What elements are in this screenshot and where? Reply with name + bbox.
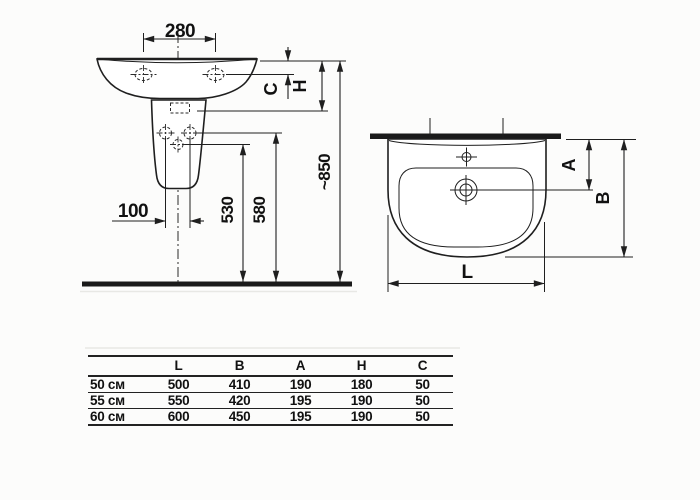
- basin-side-outline: [97, 59, 257, 99]
- dim-850-label: ~850: [315, 154, 334, 190]
- table-cell: 195: [270, 394, 331, 408]
- dim-C-label: C: [261, 83, 281, 96]
- dim-B: B: [593, 140, 624, 258]
- spec-table: L B A H C 50 см 500 410 190 180 50 55 см…: [88, 355, 453, 426]
- table-cell: 50: [392, 378, 453, 392]
- dim-A-label: A: [559, 159, 579, 172]
- table-header-cell-C: C: [392, 359, 453, 373]
- table-cell: 195: [270, 410, 331, 424]
- side-view: 280 C H ~850 580: [80, 21, 357, 292]
- washbasin-technical-drawing: 280 C H ~850 580: [0, 0, 700, 500]
- dim-580: 580: [250, 133, 276, 282]
- table-cell: 50: [392, 394, 453, 408]
- table-row-55cm: 55 см 550 420 195 190 50: [88, 393, 453, 409]
- dim-B-label: B: [593, 192, 613, 205]
- table-cell: 550: [148, 394, 209, 408]
- dim-100-label: 100: [118, 201, 148, 222]
- dim-L-label: L: [461, 262, 473, 283]
- dim-280: 280: [144, 21, 216, 52]
- floor-line: [82, 282, 352, 287]
- dim-H: H: [290, 61, 322, 111]
- dim-530: 530: [218, 145, 243, 282]
- table-cell: 190: [331, 394, 392, 408]
- dim-580-label: 580: [250, 197, 269, 224]
- table-row-label: 50 см: [88, 378, 148, 392]
- table-header-row: L B A H C: [88, 357, 453, 377]
- table-row-60cm: 60 см 600 450 195 190 50: [88, 409, 453, 424]
- table-cell: 420: [209, 394, 270, 408]
- dim-C: C: [261, 47, 288, 99]
- top-view: A B L: [370, 118, 636, 292]
- table-header-cell-H: H: [331, 359, 392, 373]
- dim-530-label: 530: [218, 197, 237, 224]
- table-cell: 180: [331, 378, 392, 392]
- table-cell: 410: [209, 378, 270, 392]
- dim-280-label: 280: [165, 21, 195, 42]
- wall-line: [370, 134, 561, 140]
- table-header-cell-B: B: [209, 359, 270, 373]
- table-cell: 500: [148, 378, 209, 392]
- table-header-cell-L: L: [148, 359, 209, 373]
- table-header-cell-A: A: [270, 359, 331, 373]
- table-row-50cm: 50 см 500 410 190 180 50: [88, 377, 453, 393]
- table-cell: 190: [270, 378, 331, 392]
- table-cell: 190: [331, 410, 392, 424]
- table-row-label: 60 см: [88, 410, 148, 424]
- table-cell: 600: [148, 410, 209, 424]
- dim-850: ~850: [315, 61, 340, 282]
- table-cell: 450: [209, 410, 270, 424]
- dim-H-label: H: [290, 80, 310, 93]
- dim-A: A: [559, 140, 589, 191]
- table-cell: 50: [392, 410, 453, 424]
- table-row-label: 55 см: [88, 394, 148, 408]
